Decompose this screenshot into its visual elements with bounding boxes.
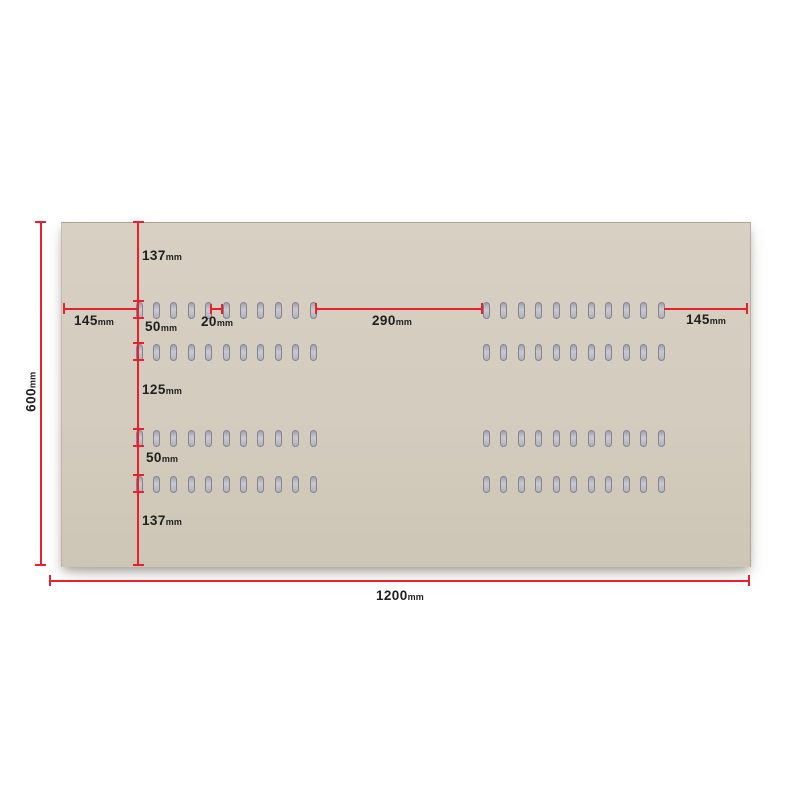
slot (275, 430, 282, 447)
slot (535, 476, 542, 493)
dim-line-right-margin (664, 308, 748, 310)
dim-cap (35, 564, 46, 566)
slot (518, 476, 525, 493)
slot (153, 344, 160, 361)
dim-label-left-margin: 145mm (74, 314, 114, 328)
slot (292, 344, 299, 361)
slot (605, 476, 612, 493)
dim-cap (315, 303, 317, 314)
slot (483, 302, 490, 319)
slot (223, 430, 230, 447)
slot (640, 344, 647, 361)
slot (588, 476, 595, 493)
dim-cap (748, 575, 750, 586)
dim-cap (35, 221, 46, 223)
dim-cap (49, 575, 51, 586)
slot (605, 344, 612, 361)
slot (605, 430, 612, 447)
slot (570, 476, 577, 493)
slot (257, 344, 264, 361)
dim-line-width (50, 580, 750, 582)
dim-label-bottom-margin: 137mm (142, 514, 182, 528)
slot (640, 430, 647, 447)
slot (170, 302, 177, 319)
dim-cap (221, 304, 223, 314)
dim-label-gap-row3-row4: 50mm (146, 451, 178, 465)
slot (605, 302, 612, 319)
slot (570, 302, 577, 319)
slot (188, 476, 195, 493)
dim-tick (133, 300, 144, 302)
slot (240, 476, 247, 493)
slot (275, 344, 282, 361)
dim-tick (133, 491, 144, 493)
slot (588, 344, 595, 361)
slot (483, 430, 490, 447)
dim-tick (133, 342, 144, 344)
slot (275, 302, 282, 319)
dim-label-height: 600mm (24, 363, 38, 421)
dim-cap (210, 304, 212, 314)
slot (205, 344, 212, 361)
slot (153, 476, 160, 493)
dimension-diagram: 600mm 1200mm 137mm 50mm 125mm 50mm 137mm… (0, 0, 800, 800)
slot (623, 302, 630, 319)
slot (570, 430, 577, 447)
slot (500, 476, 507, 493)
slot (170, 344, 177, 361)
slot (223, 476, 230, 493)
slot (500, 344, 507, 361)
dim-cap (481, 303, 483, 314)
slot (240, 430, 247, 447)
slot (535, 430, 542, 447)
slot (553, 344, 560, 361)
slot (483, 476, 490, 493)
dim-label-top-margin: 137mm (142, 249, 182, 263)
slot (658, 344, 665, 361)
slot (257, 302, 264, 319)
slot (588, 302, 595, 319)
slot (310, 430, 317, 447)
dim-label-slot-pitch: 20mm (201, 315, 233, 329)
dim-label-gap-row1-row2: 50mm (145, 320, 177, 334)
slot (500, 430, 507, 447)
slot (640, 476, 647, 493)
slot (188, 344, 195, 361)
dim-line-left-margin (63, 308, 137, 310)
dim-label-gap-row2-row3: 125mm (142, 383, 182, 397)
slot (658, 302, 665, 319)
slot (623, 476, 630, 493)
dim-tick (133, 474, 144, 476)
slot (188, 430, 195, 447)
slot (170, 476, 177, 493)
slot (553, 430, 560, 447)
slot (500, 302, 507, 319)
dim-line-vertical-column (137, 222, 139, 566)
slot (205, 430, 212, 447)
slot (275, 476, 282, 493)
dim-label-center-gap: 290mm (372, 314, 412, 328)
slot (553, 302, 560, 319)
slot (310, 476, 317, 493)
slot (153, 430, 160, 447)
slot (623, 430, 630, 447)
dim-cap (746, 303, 748, 314)
dim-line-center-gap (316, 308, 482, 310)
slot (658, 476, 665, 493)
slot (223, 344, 230, 361)
dim-label-width: 1200mm (360, 589, 440, 603)
dim-label-right-margin: 145mm (686, 313, 726, 327)
dim-tick (133, 445, 144, 447)
slot (553, 476, 560, 493)
slot (188, 302, 195, 319)
slot (153, 302, 160, 319)
slot (240, 302, 247, 319)
slot (257, 476, 264, 493)
slot (535, 302, 542, 319)
slot (240, 344, 247, 361)
slot (623, 344, 630, 361)
dim-tick (133, 564, 144, 566)
slot (518, 302, 525, 319)
slot (483, 344, 490, 361)
slot (570, 344, 577, 361)
slot (257, 430, 264, 447)
dim-line-height (40, 222, 42, 566)
dim-tick (133, 359, 144, 361)
dim-tick (133, 221, 144, 223)
dim-tick (133, 428, 144, 430)
slot (292, 430, 299, 447)
slot (292, 476, 299, 493)
slot (170, 430, 177, 447)
slot (535, 344, 542, 361)
dim-cap (63, 303, 65, 314)
slot (292, 302, 299, 319)
slot (640, 302, 647, 319)
slot (205, 476, 212, 493)
slot (518, 344, 525, 361)
slot (310, 344, 317, 361)
slot (518, 430, 525, 447)
dim-tick (133, 317, 144, 319)
slot (588, 430, 595, 447)
slot (658, 430, 665, 447)
